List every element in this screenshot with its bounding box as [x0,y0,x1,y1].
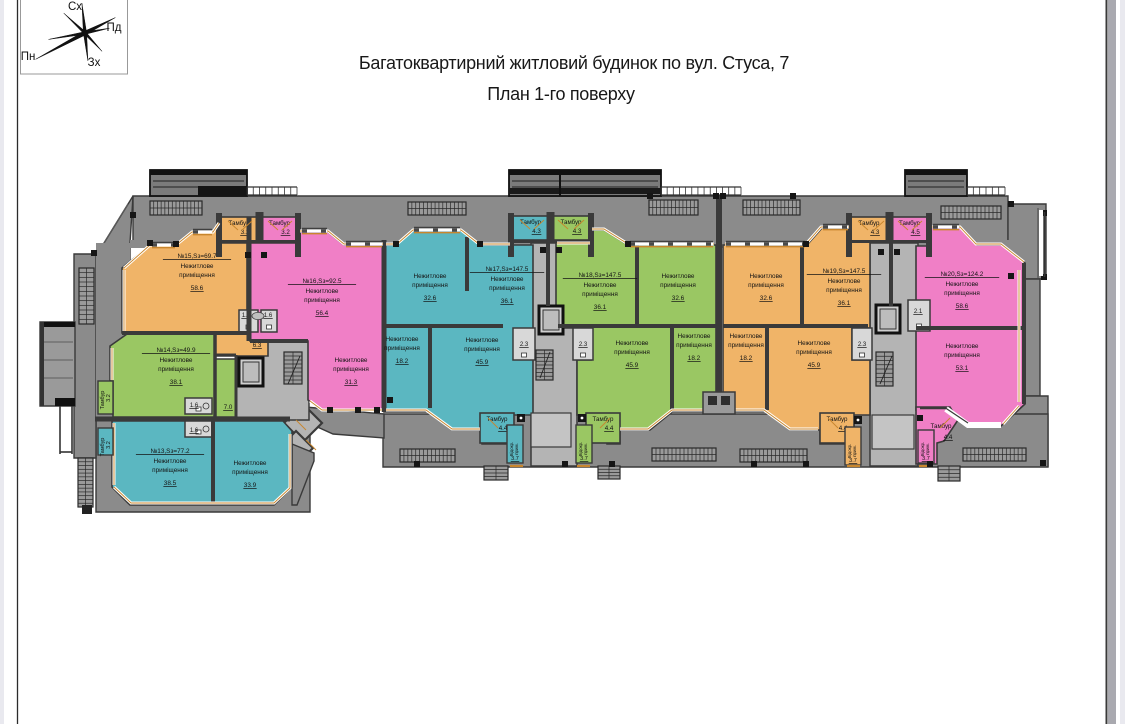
svg-text:Нежитлове: Нежитлове [160,357,193,364]
svg-text:Тамбур: Тамбур [269,220,291,227]
svg-text:приміщення: приміщення [660,281,696,289]
svg-text:Багатоквартирний житловий буди: Багатоквартирний житловий будинок по вул… [359,53,790,73]
svg-text:Нежитлове: Нежитлове [662,273,695,280]
svg-text:Нежитлове: Нежитлове [181,263,214,270]
svg-text:33.9: 33.9 [244,482,257,489]
svg-text:Пд: Пд [107,22,122,34]
svg-text:№17,Sз=147.5: №17,Sз=147.5 [486,266,529,273]
svg-text:№15,Sз=69.7: №15,Sз=69.7 [177,253,217,260]
svg-text:53.1: 53.1 [956,365,969,372]
svg-text:приміщення: приміщення [384,344,420,352]
svg-text:Пн: Пн [21,51,36,63]
svg-text:1.6: 1.6 [264,313,273,319]
svg-text:Нежитлове: Нежитлове [154,458,187,465]
svg-text:приміщення: приміщення [333,365,369,373]
svg-text:4.4: 4.4 [944,434,953,441]
svg-text:Нежитлове: Нежитлове [750,273,783,280]
svg-text:31.3: 31.3 [345,379,358,386]
svg-text:58.6: 58.6 [956,303,969,310]
svg-text:36.1: 36.1 [501,298,514,305]
svg-text:№13,Sз=77.2: №13,Sз=77.2 [150,448,190,455]
svg-text:приміщення: приміщення [304,296,340,304]
svg-text:приміщення: приміщення [158,365,194,373]
svg-text:4.4: 4.4 [605,425,614,432]
svg-text:приміщення: приміщення [412,281,448,289]
svg-text:приміщення: приміщення [464,345,500,353]
svg-text:2.3: 2.3 [520,342,529,348]
svg-text:Нежитлове: Нежитлове [306,288,339,295]
svg-text:38.1: 38.1 [170,379,183,386]
svg-text:приміщення: приміщення [676,341,712,349]
svg-text:6.3: 6.3 [253,342,262,349]
svg-text:4.3: 4.3 [532,228,541,235]
svg-text:№20,Sз=124.2: №20,Sз=124.2 [941,271,984,278]
svg-text:приміщення: приміщення [796,348,832,356]
svg-text:3.7: 3.7 [511,456,519,462]
svg-text:приміщення: приміщення [748,281,784,289]
svg-text:18.2: 18.2 [688,355,701,362]
svg-text:План 1-го поверху: План 1-го поверху [487,84,635,104]
svg-text:Нежитлове: Нежитлове [678,333,711,340]
svg-text:45.9: 45.9 [808,362,821,369]
svg-text:56.4: 56.4 [316,310,329,317]
svg-text:3.7: 3.7 [580,456,588,462]
svg-text:№19,Sз=147.5: №19,Sз=147.5 [823,268,866,275]
svg-text:Нежитлове: Нежитлове [584,282,617,289]
svg-text:прим.: прим. [852,445,857,457]
svg-text:Нежитлове: Нежитлове [616,340,649,347]
svg-text:58.6: 58.6 [191,285,204,292]
svg-text:1.6: 1.6 [190,403,199,409]
svg-text:3.2: 3.2 [106,394,112,402]
svg-text:Нежитлове: Нежитлове [491,276,524,283]
svg-text:3.2: 3.2 [106,441,112,449]
svg-text:Нежитлове: Нежитлове [234,460,267,467]
svg-text:Сх: Сх [68,1,82,13]
svg-text:7.0: 7.0 [224,404,233,411]
svg-text:приміщення: приміщення [728,341,764,349]
svg-text:Тамбур: Тамбур [593,416,615,423]
svg-text:прим.: прим. [514,443,519,455]
svg-text:Нежитлове: Нежитлове [466,337,499,344]
svg-text:Нежитлове: Нежитлове [798,340,831,347]
svg-text:38.5: 38.5 [164,480,177,487]
svg-text:приміщення: приміщення [614,348,650,356]
svg-text:1.6: 1.6 [190,428,199,434]
svg-text:45.9: 45.9 [476,359,489,366]
svg-text:32.6: 32.6 [424,295,437,302]
svg-text:приміщення: приміщення [944,289,980,297]
svg-text:приміщення: приміщення [582,290,618,298]
svg-text:2.3: 2.3 [858,342,867,348]
svg-text:прим.: прим. [583,443,588,455]
svg-text:18.2: 18.2 [740,355,753,362]
svg-text:Тамбур: Тамбур [859,220,881,227]
svg-text:Нежитлове: Нежитлове [730,333,763,340]
svg-text:Нежитлове: Нежитлове [828,278,861,285]
svg-text:36.1: 36.1 [838,300,851,307]
svg-text:№14,Sз=49.9: №14,Sз=49.9 [156,347,196,354]
svg-text:приміщення: приміщення [489,284,525,292]
svg-text:№16,Sз=92.5: №16,Sз=92.5 [302,278,342,285]
svg-text:Нежитлове: Нежитлове [335,357,368,364]
svg-text:Тамбур: Тамбур [899,220,921,227]
svg-text:Зх: Зх [88,57,101,69]
svg-text:18.2: 18.2 [396,358,409,365]
svg-text:4.3: 4.3 [871,229,880,236]
svg-text:приміщення: приміщення [232,468,268,476]
svg-text:приміщення: приміщення [944,351,980,359]
svg-text:приміщення: приміщення [826,286,862,294]
svg-text:приміщення: приміщення [152,466,188,474]
svg-text:№18,Sз=147.5: №18,Sз=147.5 [579,272,622,279]
svg-text:Нежитлове: Нежитлове [946,281,979,288]
svg-text:32.6: 32.6 [760,295,773,302]
svg-text:3.7: 3.7 [849,458,857,464]
svg-text:приміщення: приміщення [179,271,215,279]
svg-text:2.1: 2.1 [914,309,923,315]
svg-text:Нежитлове: Нежитлове [414,273,447,280]
svg-text:2.3: 2.3 [579,342,588,348]
svg-text:прим.: прим. [925,443,930,455]
svg-text:Нежитлове: Нежитлове [386,336,419,343]
svg-text:32.6: 32.6 [672,295,685,302]
svg-text:36.1: 36.1 [594,304,607,311]
svg-text:Нежитлове: Нежитлове [946,343,979,350]
svg-text:45.9: 45.9 [626,362,639,369]
